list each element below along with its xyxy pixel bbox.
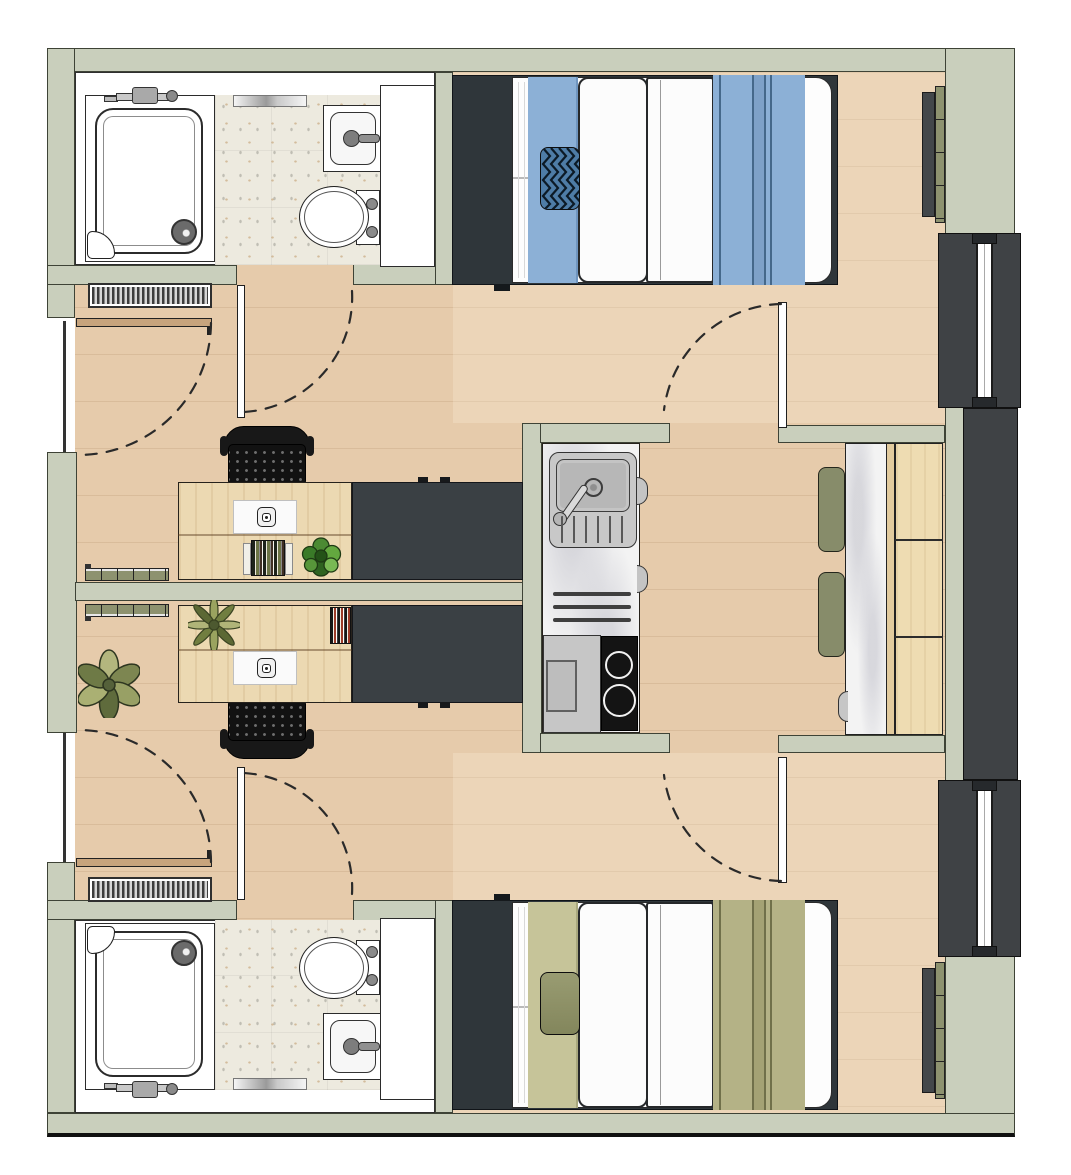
entry-door-top-arc — [78, 323, 211, 455]
bathroom-door-bottom-arc — [244, 773, 352, 894]
entry-door-bottom-arc — [78, 730, 211, 862]
door-swing-arcs — [0, 0, 1071, 1175]
bedroom-door-top-arc — [664, 304, 781, 410]
bedroom-door-bottom-arc — [664, 775, 781, 881]
bathroom-door-top-arc — [244, 291, 352, 412]
floor-plan-canvas — [0, 0, 1071, 1175]
